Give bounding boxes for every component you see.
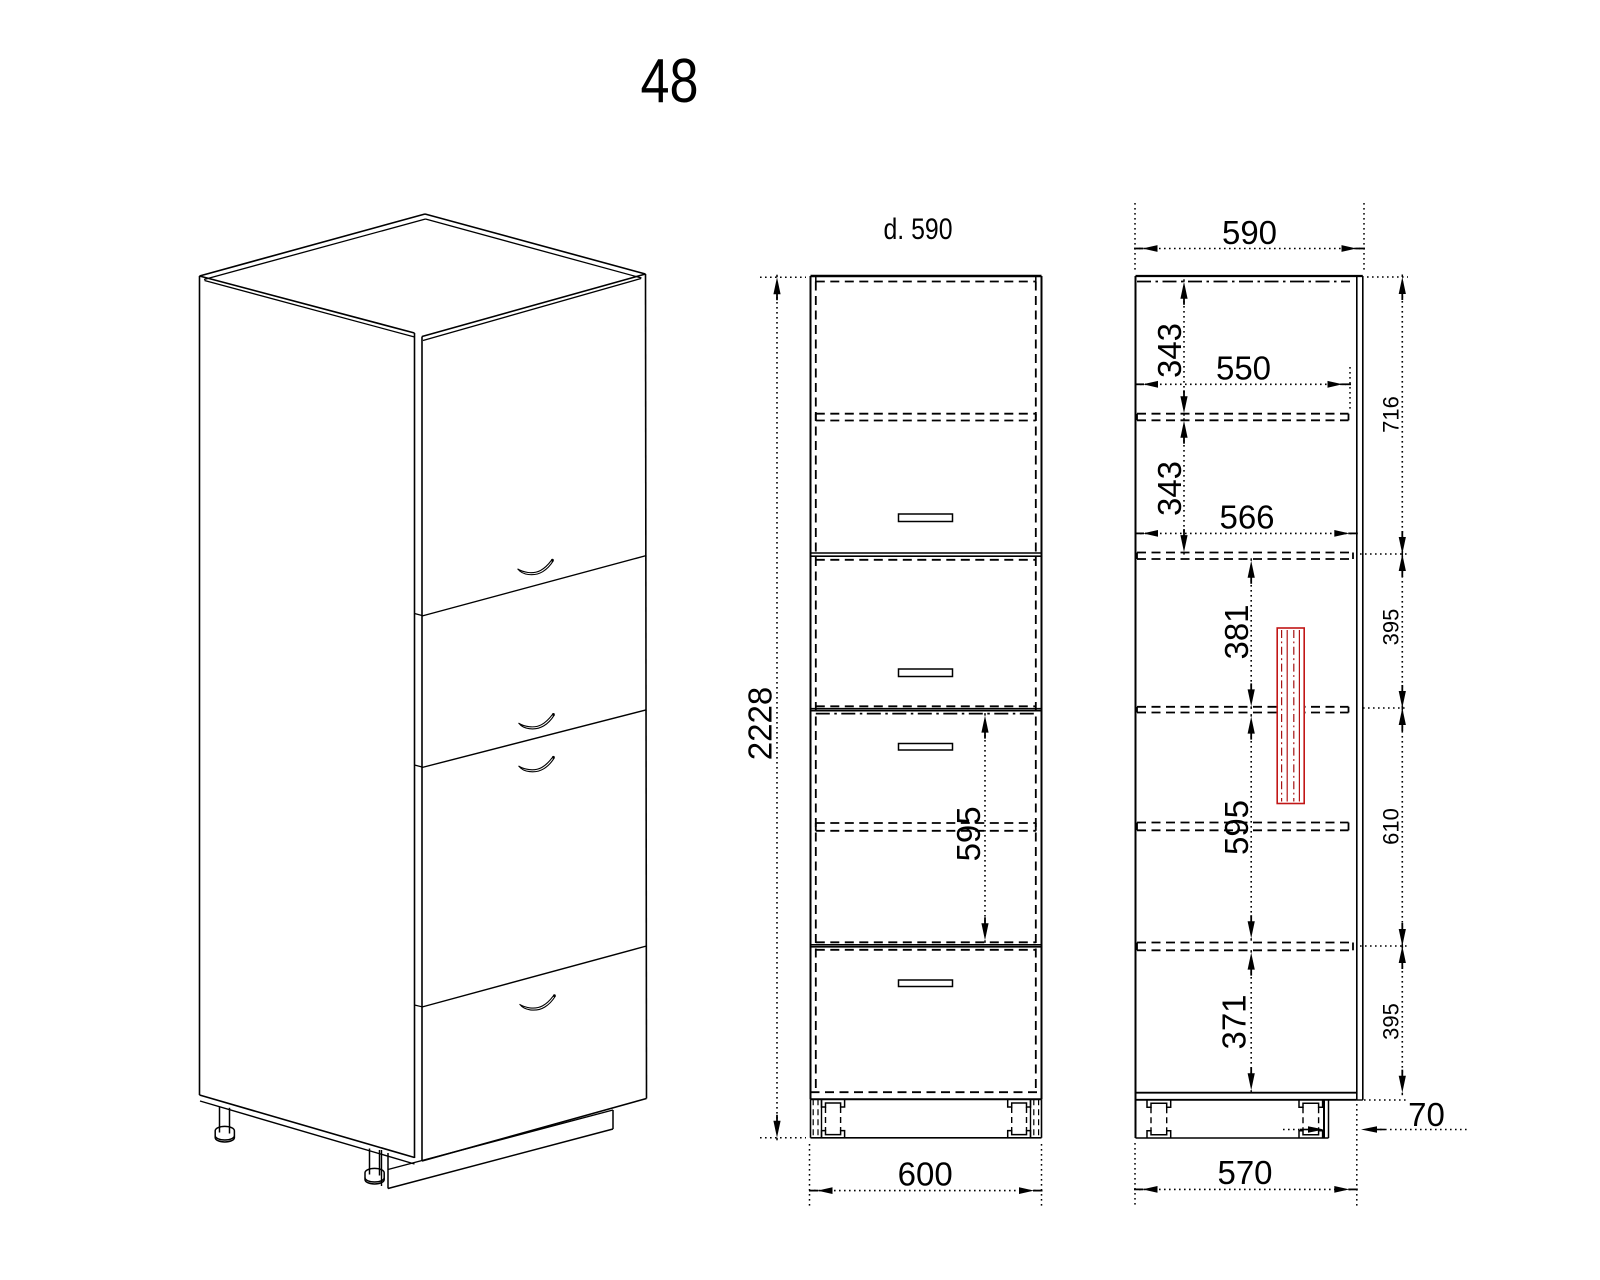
svg-text:343: 343 <box>1151 323 1188 378</box>
svg-text:570: 570 <box>1217 1154 1272 1191</box>
svg-text:371: 371 <box>1216 994 1253 1049</box>
svg-text:395: 395 <box>1379 1003 1404 1040</box>
svg-text:610: 610 <box>1379 808 1404 845</box>
svg-text:590: 590 <box>1222 214 1277 251</box>
svg-text:595: 595 <box>1218 800 1255 855</box>
svg-text:381: 381 <box>1218 604 1255 659</box>
svg-text:d. 590: d. 590 <box>884 213 953 246</box>
svg-text:566: 566 <box>1219 499 1274 536</box>
svg-text:2228: 2228 <box>742 687 779 760</box>
svg-text:595: 595 <box>950 806 987 861</box>
svg-text:48: 48 <box>641 47 699 116</box>
svg-text:395: 395 <box>1379 609 1404 646</box>
svg-text:343: 343 <box>1151 461 1188 516</box>
svg-text:550: 550 <box>1216 350 1271 387</box>
svg-text:716: 716 <box>1379 396 1404 433</box>
svg-text:600: 600 <box>898 1155 953 1192</box>
svg-text:70: 70 <box>1408 1096 1445 1133</box>
